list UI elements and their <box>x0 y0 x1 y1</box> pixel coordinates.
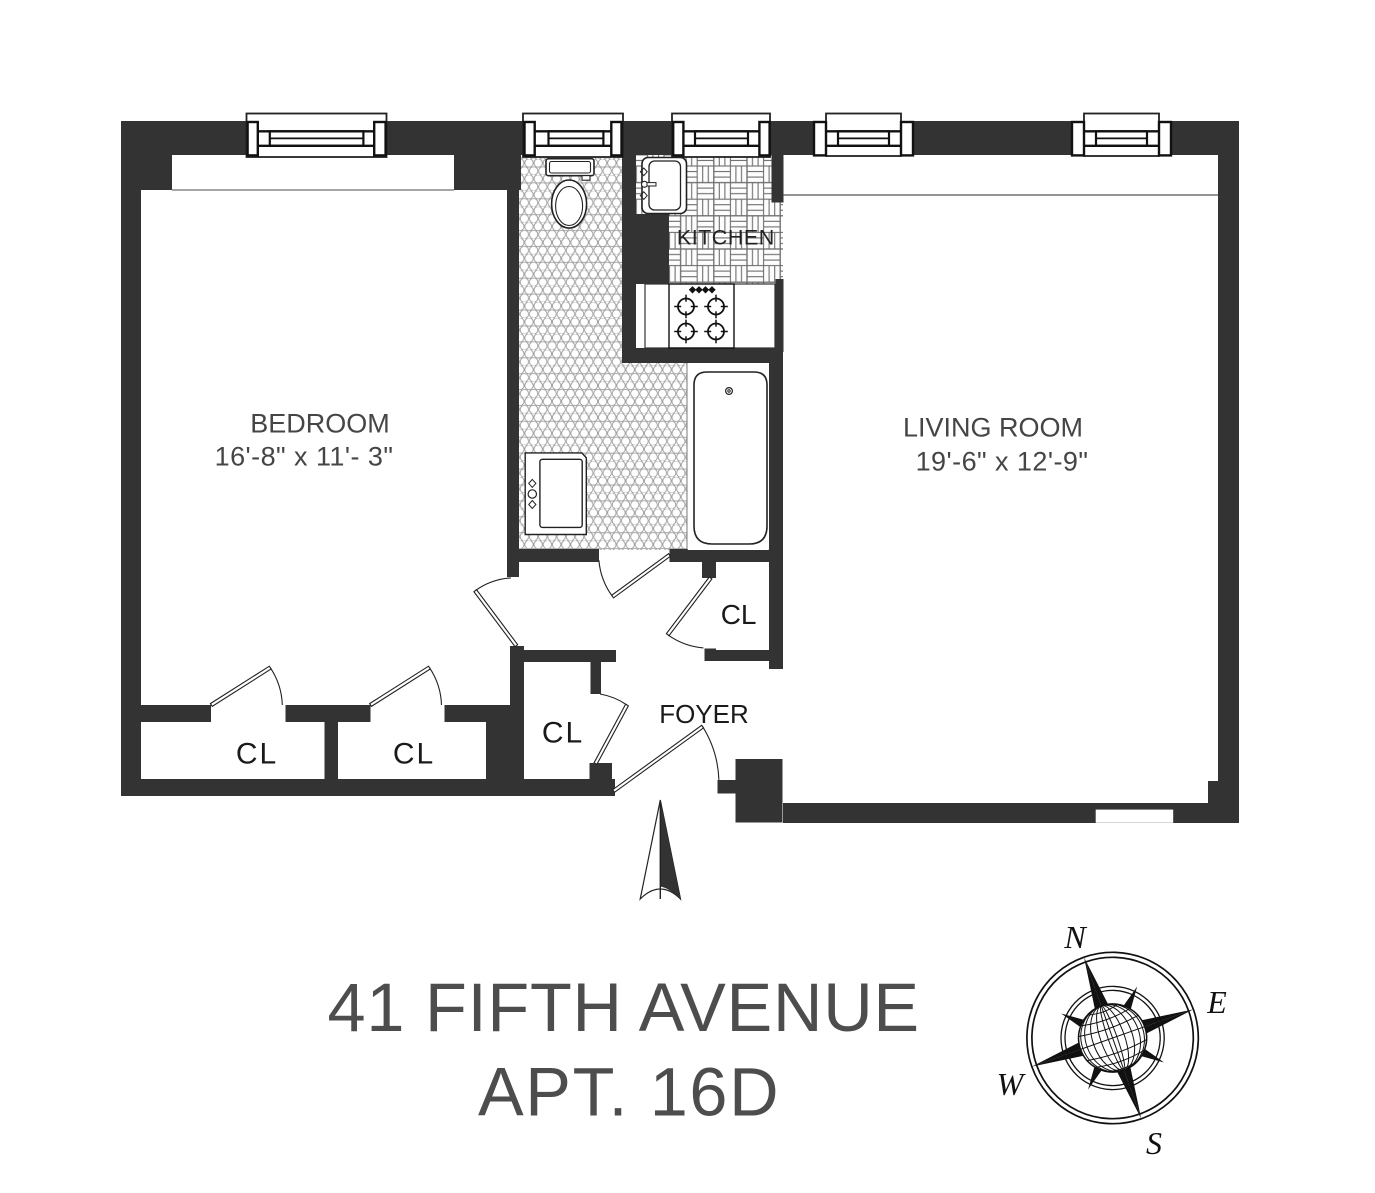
svg-text:KITCHEN: KITCHEN <box>677 226 775 250</box>
svg-text:CL: CL <box>721 599 757 630</box>
svg-text:CL: CL <box>542 717 584 750</box>
svg-text:N: N <box>1063 919 1087 955</box>
svg-text:E: E <box>1206 984 1227 1020</box>
svg-text:CL: CL <box>236 738 278 771</box>
svg-text:19'-6" x 12'-9": 19'-6" x 12'-9" <box>916 447 1089 477</box>
svg-text:W: W <box>997 1066 1027 1102</box>
svg-text:41 FIFTH AVENUE: 41 FIFTH AVENUE <box>328 969 920 1046</box>
svg-text:16'-8" x 11'- 3": 16'-8" x 11'- 3" <box>215 441 394 471</box>
svg-text:FOYER: FOYER <box>659 699 749 729</box>
svg-text:S: S <box>1146 1125 1162 1161</box>
svg-text:BEDROOM: BEDROOM <box>250 409 390 439</box>
svg-text:CL: CL <box>393 738 435 771</box>
svg-text:LIVING ROOM: LIVING ROOM <box>903 412 1083 442</box>
svg-text:APT. 16D: APT. 16D <box>478 1054 780 1131</box>
